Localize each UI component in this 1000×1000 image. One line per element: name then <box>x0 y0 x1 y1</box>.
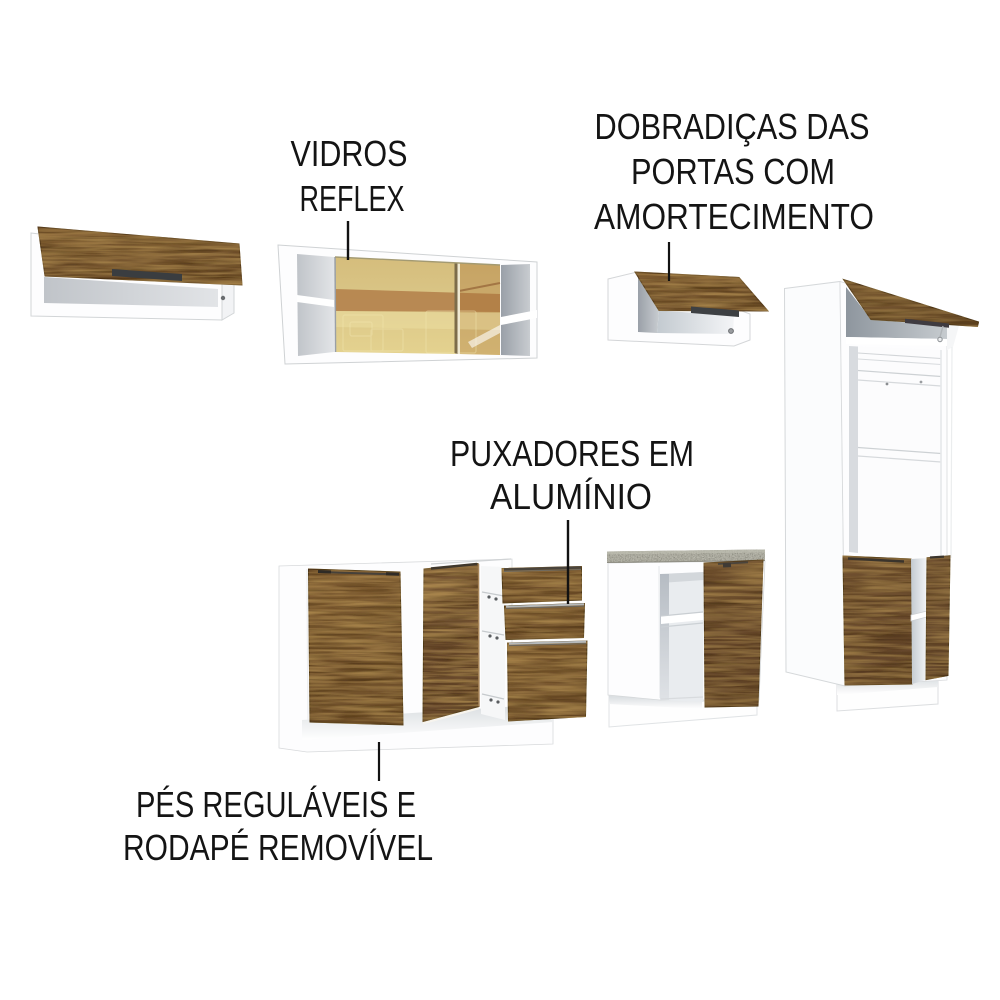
svg-text:PÉS REGULÁVEIS E: PÉS REGULÁVEIS E <box>136 784 416 825</box>
svg-text:ALUMÍNIO: ALUMÍNIO <box>490 476 652 517</box>
svg-text:PORTAS COM: PORTAS COM <box>631 151 835 192</box>
svg-text:REFLEX: REFLEX <box>300 178 405 219</box>
svg-text:DOBRADIÇAS DAS: DOBRADIÇAS DAS <box>595 106 870 147</box>
svg-text:AMORTECIMENTO: AMORTECIMENTO <box>594 196 874 237</box>
svg-text:PUXADORES EM: PUXADORES EM <box>450 433 694 474</box>
svg-text:RODAPÉ REMOVÍVEL: RODAPÉ REMOVÍVEL <box>123 827 433 868</box>
svg-text:VIDROS: VIDROS <box>291 133 408 174</box>
